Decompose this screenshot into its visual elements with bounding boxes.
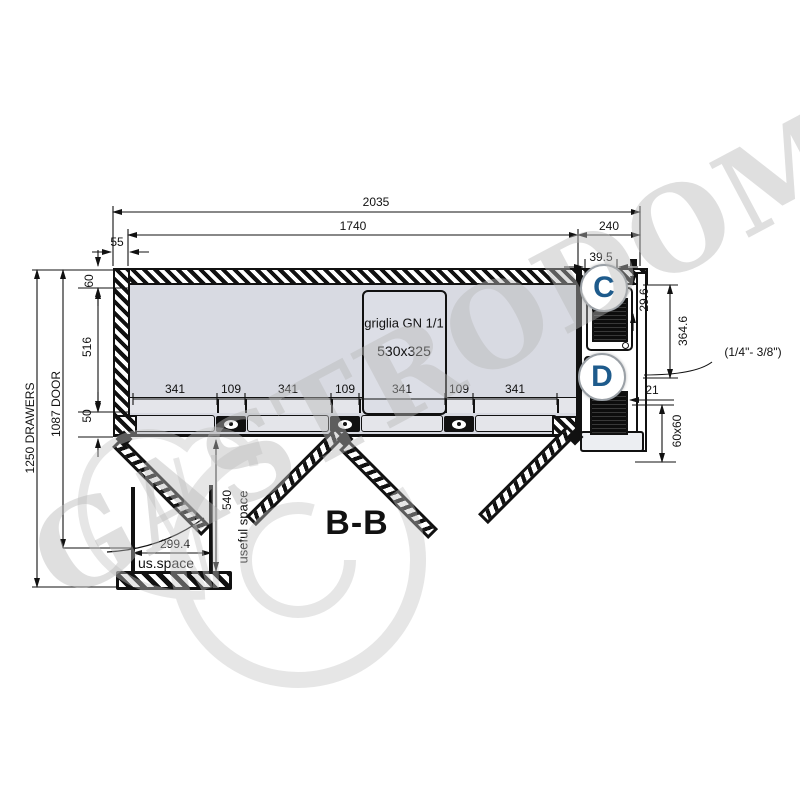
hinge-pin (229, 422, 233, 426)
gn-grid-label-line2: 530x325 (377, 344, 431, 358)
front-divider (473, 399, 475, 413)
technical-drawing-canvas: 2035 1740 240 55 39.5 29.6 364.6 21 60x6… (0, 0, 800, 800)
open-door-leaf (112, 437, 211, 536)
callout-d-letter: D (591, 360, 613, 394)
dim-bay-width: 109 (335, 383, 355, 395)
left-wall-section (113, 268, 130, 437)
dim-interior-depth: 516 (81, 337, 93, 357)
front-divider (217, 399, 219, 413)
front-divider (557, 399, 559, 413)
callout-c-letter: C (593, 271, 615, 305)
door-front-panel (133, 415, 215, 432)
dim-bay-width: 109 (221, 383, 241, 395)
pipe-size-note: (1/4"- 3/8") (724, 346, 781, 358)
dim-wall-left: 55 (110, 236, 123, 248)
dim-drawer-depth: 540 (221, 490, 233, 510)
dim-top-thickness: 60 (83, 274, 95, 287)
dim-depth-door: 1087 DOOR (50, 371, 62, 437)
dim-drawer-width: 299.4 (160, 538, 190, 550)
dim-bay-width: 341 (392, 383, 412, 395)
dim-cond-offset: 39.5 (589, 251, 612, 263)
hinge-pin (343, 422, 347, 426)
dim-bay-width: 341 (505, 383, 525, 395)
dim-motor-width: 240 (599, 220, 619, 232)
callout-d: D (578, 353, 626, 401)
dim-bay-width: 109 (449, 383, 469, 395)
front-divider (245, 399, 247, 413)
hinge-eye (452, 420, 466, 429)
motor-top-fastener (630, 259, 637, 266)
hinge-block (444, 416, 474, 432)
hinge-pin (457, 422, 461, 426)
dim-cond-gap: 21 (645, 384, 658, 396)
drawer-rail-left (131, 487, 135, 573)
drawer-depth-label: useful space (237, 491, 250, 564)
door-front-panel (475, 415, 557, 432)
dim-front-thickness: 50 (81, 409, 93, 422)
gn-grid-label-line1: griglia GN 1/1 (364, 317, 443, 330)
dim-motor-height: 364.6 (677, 316, 689, 346)
front-divider (359, 399, 361, 413)
hinge-eye (338, 420, 352, 429)
dim-cond-section: 60x60 (671, 415, 683, 448)
callout-c: C (580, 264, 628, 312)
dim-interior-width: 1740 (340, 220, 367, 232)
section-label: B-B (325, 506, 388, 540)
dim-overall-width: 2035 (363, 196, 390, 208)
open-door-leaf (478, 425, 577, 524)
drawer-width-label: us.space (138, 556, 194, 570)
hinge-block (216, 416, 246, 432)
front-divider (331, 399, 333, 413)
door-front-panel (361, 415, 443, 432)
condensing-unit-c-cap (622, 342, 629, 349)
drawer-rail-right (209, 485, 213, 573)
top-wall-section (113, 268, 648, 285)
dim-bay-width: 341 (278, 383, 298, 395)
dim-depth-drawers: 1250 DRAWERS (24, 383, 36, 474)
front-band (130, 397, 578, 413)
dim-bay-width: 341 (165, 383, 185, 395)
dim-cond-inset: 29.6 (638, 288, 650, 311)
door-front-panel (247, 415, 329, 432)
hinge-eye (224, 420, 238, 429)
drawer-front-plate (116, 571, 232, 590)
